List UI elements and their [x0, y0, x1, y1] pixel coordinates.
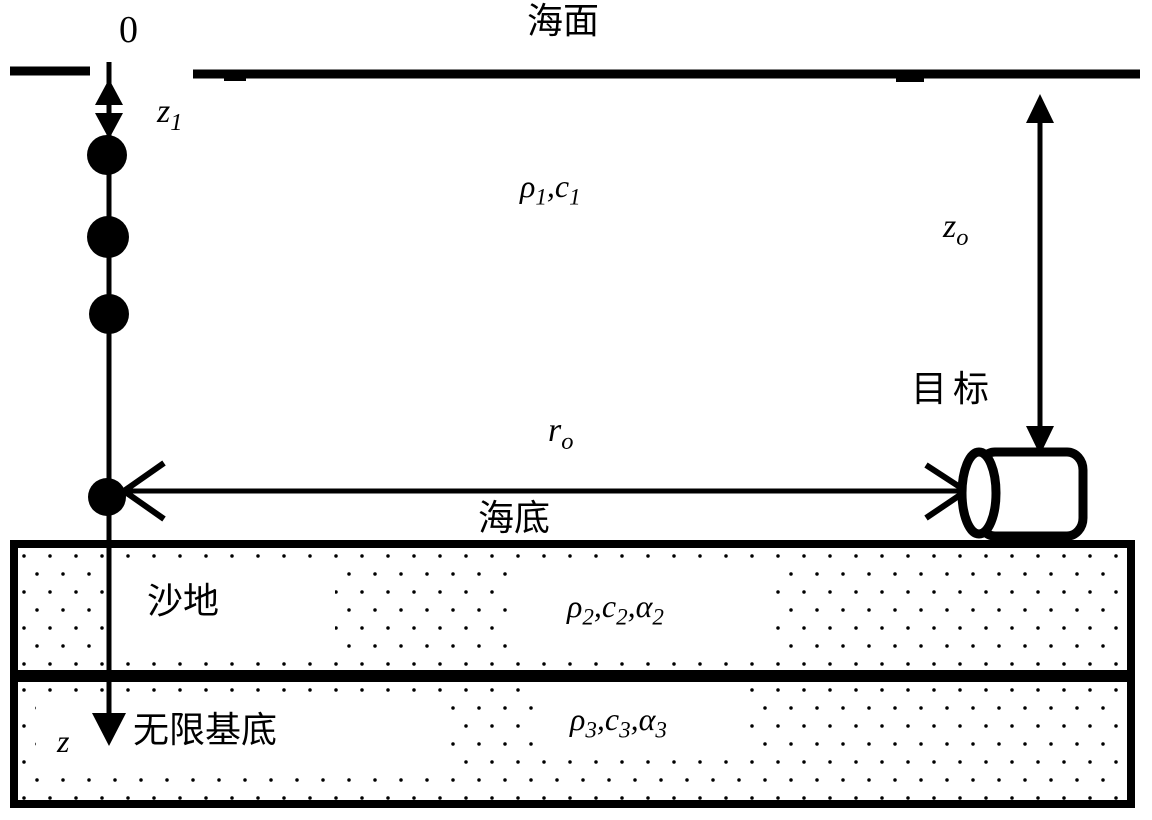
ro-base: r: [548, 412, 561, 449]
rho1: ρ: [520, 168, 535, 204]
rho2: ρ: [567, 588, 582, 624]
sea-surface-label: 海面: [527, 3, 599, 39]
alpha3-sub: 3: [655, 716, 667, 742]
zo-arrowhead-up: [1026, 94, 1054, 123]
medium2-properties-label: ρ2,c2,α2: [567, 590, 664, 622]
hydrophone-dot-3: [89, 294, 129, 334]
zo-base: z: [943, 208, 956, 245]
basement-label: 无限基底: [133, 712, 277, 748]
target-depth-label: zo: [943, 210, 968, 244]
c2: ,c: [594, 588, 616, 624]
surface-line-overlap-mark-2: [896, 74, 924, 82]
alpha2: ,α: [628, 588, 653, 624]
c3-sub: 3: [619, 716, 631, 742]
hydrophone-dot-1: [87, 135, 127, 175]
origin-label: 0: [119, 11, 138, 49]
target-label: 目标: [911, 371, 995, 407]
seabed-label: 海底: [478, 500, 550, 536]
zo-subscript: o: [956, 224, 968, 251]
z1-arrowhead-up: [95, 79, 123, 105]
c3: ,c: [597, 701, 619, 737]
z1-subscript: 1: [170, 109, 182, 136]
hydrophone-dot-2: [87, 216, 129, 258]
sand-label: 沙地: [147, 583, 219, 619]
c2-sub: 2: [616, 603, 628, 629]
surface-line-overlap-mark-1: [224, 73, 246, 81]
z-axis-label: z: [57, 725, 69, 757]
alpha3: ,α: [631, 701, 656, 737]
z1-base: z: [157, 93, 170, 130]
medium3-properties-label: ρ3,c3,α3: [570, 703, 667, 735]
target-cylinder-face: [962, 452, 996, 534]
rho3: ρ: [570, 701, 585, 737]
hydrophone-dot-4: [88, 478, 126, 516]
target-range-label: ro: [548, 414, 573, 448]
rho2-sub: 2: [582, 603, 594, 629]
medium1-properties-label: ρ1,c1: [520, 170, 581, 202]
alpha2-sub: 2: [652, 603, 664, 629]
underwater-acoustics-diagram: 0 海面 z1 ρ1,c1 zo 目标 ro 海底 沙地 ρ2,c2,α2 无限…: [0, 0, 1152, 820]
rho1-sub: 1: [535, 183, 547, 209]
rho3-sub: 3: [585, 716, 597, 742]
ro-subscript: o: [561, 428, 573, 455]
z-axis-arrowhead: [92, 713, 126, 746]
c1-sub: 1: [569, 183, 581, 209]
z1-arrowhead-down: [95, 113, 123, 139]
array-top-depth-label: z1: [157, 95, 182, 129]
c1: ,c: [547, 168, 569, 204]
